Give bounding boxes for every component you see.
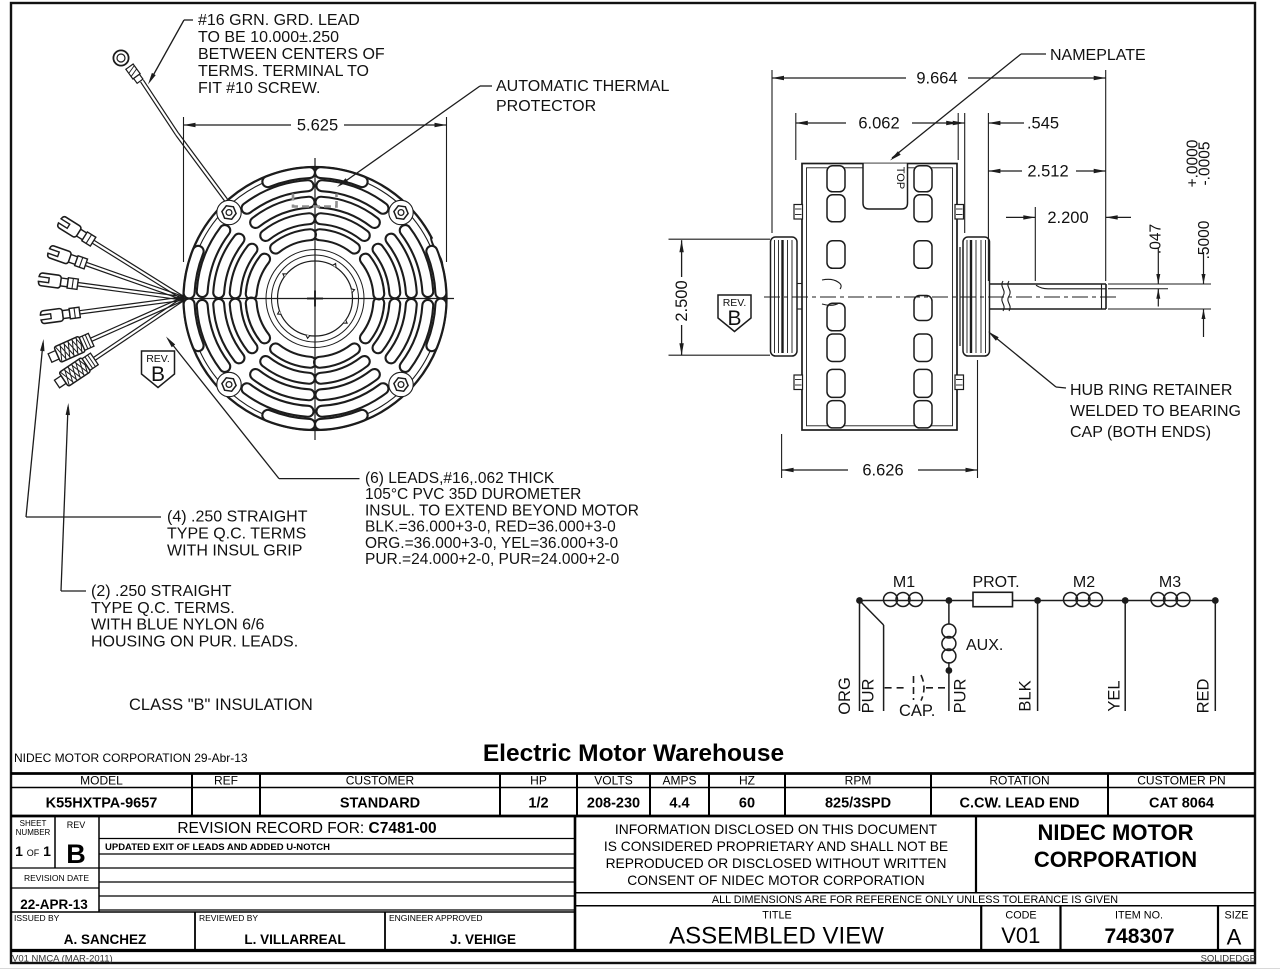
svg-text:CUSTOMER: CUSTOMER xyxy=(346,774,415,788)
svg-text:J. VEHIGE: J. VEHIGE xyxy=(450,932,516,947)
svg-text:WITH BLUE NYLON 6/6: WITH BLUE NYLON 6/6 xyxy=(91,617,264,634)
svg-text:BLK: BLK xyxy=(1017,680,1035,711)
svg-text:REVISION DATE: REVISION DATE xyxy=(24,873,89,883)
svg-text:HP: HP xyxy=(530,774,547,788)
svg-text:SHEET: SHEET xyxy=(20,819,47,828)
svg-text:INFORMATION DISCLOSED ON THIS: INFORMATION DISCLOSED ON THIS DOCUMENT xyxy=(615,822,938,837)
svg-text:CONSENT OF NIDEC MOTOR CORPORA: CONSENT OF NIDEC MOTOR CORPORATION xyxy=(627,873,924,888)
svg-text:PUR: PUR xyxy=(952,679,970,714)
svg-text:PUR: PUR xyxy=(860,679,878,714)
svg-text:60: 60 xyxy=(739,796,755,812)
svg-text:CORPORATION: CORPORATION xyxy=(1034,847,1197,872)
svg-text:B: B xyxy=(151,363,165,386)
svg-text:YEL: YEL xyxy=(1106,680,1124,711)
svg-text:748307: 748307 xyxy=(1104,925,1174,948)
svg-text:REVIEWED BY: REVIEWED BY xyxy=(199,913,258,923)
svg-text:TO BE 10.000±.250: TO BE 10.000±.250 xyxy=(198,29,339,46)
svg-text:NAMEPLATE: NAMEPLATE xyxy=(1050,47,1146,64)
svg-text:.047: .047 xyxy=(1148,224,1165,254)
svg-text:1/2: 1/2 xyxy=(528,796,548,812)
svg-text:HUB RING RETAINER: HUB RING RETAINER xyxy=(1070,382,1232,399)
svg-text:2.500: 2.500 xyxy=(673,280,691,321)
svg-text:BETWEEN CENTERS OF: BETWEEN CENTERS OF xyxy=(198,46,385,63)
svg-text:-.0005: -.0005 xyxy=(1197,142,1214,186)
svg-text:STANDARD: STANDARD xyxy=(340,796,420,812)
svg-text:V01: V01 xyxy=(1001,923,1040,948)
svg-text:C.CW. LEAD END: C.CW. LEAD END xyxy=(959,796,1079,812)
svg-text:M3: M3 xyxy=(1159,574,1181,591)
svg-text:PUR.=24.000+2-0, PUR=24.000+2-: PUR.=24.000+2-0, PUR=24.000+2-0 xyxy=(365,551,620,568)
svg-text:BLK.=36.000+3-0, RED=36.000+3-: BLK.=36.000+3-0, RED=36.000+3-0 xyxy=(365,519,616,536)
svg-text:REV: REV xyxy=(67,820,86,830)
svg-text:K55HXTPA-9657: K55HXTPA-9657 xyxy=(46,796,158,812)
svg-text:TYPE Q.C. TERMS.: TYPE Q.C. TERMS. xyxy=(91,600,235,617)
svg-text:2.200: 2.200 xyxy=(1047,209,1088,227)
svg-text:9.664: 9.664 xyxy=(916,70,957,88)
svg-text:#16 GRN. GRD. LEAD: #16 GRN. GRD. LEAD xyxy=(198,12,360,29)
svg-text:VOLTS: VOLTS xyxy=(594,774,632,788)
svg-text:ROTATION: ROTATION xyxy=(989,774,1049,788)
svg-text:(4) .250 STRAIGHT: (4) .250 STRAIGHT xyxy=(167,509,308,526)
svg-text:22-APR-13: 22-APR-13 xyxy=(20,897,88,912)
svg-text:4.4: 4.4 xyxy=(669,796,689,812)
svg-text:2.512: 2.512 xyxy=(1027,163,1068,181)
svg-text:L. VILLARREAL: L. VILLARREAL xyxy=(244,932,345,947)
svg-text:RED: RED xyxy=(1195,679,1213,714)
svg-text:CAP.: CAP. xyxy=(899,702,935,720)
svg-text:AUX.: AUX. xyxy=(966,637,1003,654)
svg-text:(6) LEADS,#16,.062 THICK: (6) LEADS,#16,.062 THICK xyxy=(365,470,555,487)
svg-text:TITLE: TITLE xyxy=(762,910,791,922)
svg-text:NIDEC MOTOR CORPORATION 29-Abr: NIDEC MOTOR CORPORATION 29-Abr-13 xyxy=(14,751,248,765)
svg-text:A. SANCHEZ: A. SANCHEZ xyxy=(64,932,147,947)
svg-text:B: B xyxy=(727,307,741,330)
svg-text:5.625: 5.625 xyxy=(297,117,338,135)
svg-text:(2) .250 STRAIGHT: (2) .250 STRAIGHT xyxy=(91,583,232,600)
svg-text:REF: REF xyxy=(214,774,238,788)
svg-text:ENGINEER APPROVED: ENGINEER APPROVED xyxy=(389,913,483,923)
svg-text:CUSTOMER PN: CUSTOMER PN xyxy=(1137,774,1225,788)
svg-text:ALL DIMENSIONS ARE FOR REFEREN: ALL DIMENSIONS ARE FOR REFERENCE ONLY UN… xyxy=(712,894,1118,906)
svg-text:CAT 8064: CAT 8064 xyxy=(1149,796,1214,812)
svg-text:ITEM NO.: ITEM NO. xyxy=(1115,910,1163,922)
svg-text:825/3SPD: 825/3SPD xyxy=(825,796,891,812)
svg-text:HZ: HZ xyxy=(739,774,755,788)
svg-text:REPRODUCED OR DISCLOSED WITHOU: REPRODUCED OR DISCLOSED WITHOUT WRITTEN xyxy=(606,856,947,871)
svg-text:INSUL. TO EXTEND BEYOND MOTOR: INSUL. TO EXTEND BEYOND MOTOR xyxy=(365,502,639,519)
svg-text:NIDEC MOTOR: NIDEC MOTOR xyxy=(1037,820,1193,845)
svg-text:HOUSING ON PUR. LEADS.: HOUSING ON PUR. LEADS. xyxy=(91,633,298,650)
svg-text:B: B xyxy=(66,839,86,869)
svg-text:.5000: .5000 xyxy=(1196,220,1213,259)
svg-text:ASSEMBLED VIEW: ASSEMBLED VIEW xyxy=(669,923,884,950)
svg-text:M1: M1 xyxy=(893,574,915,591)
svg-text:PROT.: PROT. xyxy=(972,574,1019,591)
svg-text:UPDATED EXIT OF LEADS AND ADDE: UPDATED EXIT OF LEADS AND ADDED U-NOTCH xyxy=(105,842,330,853)
svg-text:M2: M2 xyxy=(1073,574,1095,591)
svg-text:AUTOMATIC THERMAL: AUTOMATIC THERMAL xyxy=(496,78,669,95)
svg-text:Electric Motor Warehouse: Electric Motor Warehouse xyxy=(483,740,784,767)
svg-text:NUMBER: NUMBER xyxy=(16,828,51,837)
svg-text:TOP: TOP xyxy=(894,167,906,189)
svg-text:TYPE Q.C. TERMS: TYPE Q.C. TERMS xyxy=(167,526,306,543)
svg-text:PROTECTOR: PROTECTOR xyxy=(496,98,596,115)
svg-text:6.626: 6.626 xyxy=(862,462,903,480)
svg-text:TERMS. TERMINAL TO: TERMS. TERMINAL TO xyxy=(198,63,369,80)
svg-text:A: A xyxy=(1227,925,1242,950)
svg-text:IS CONSIDERED PROPRIETARY AND: IS CONSIDERED PROPRIETARY AND SHALL NOT … xyxy=(604,839,948,854)
svg-text:CAP (BOTH ENDS): CAP (BOTH ENDS) xyxy=(1070,424,1211,441)
svg-text:WITH INSUL GRIP: WITH INSUL GRIP xyxy=(167,543,302,560)
svg-text:REVISION RECORD FOR: C7481-00: REVISION RECORD FOR: C7481-00 xyxy=(177,820,436,837)
svg-text:CLASS "B" INSULATION: CLASS "B" INSULATION xyxy=(129,696,313,714)
svg-text:105°C PVC 35D DUROMETER: 105°C PVC 35D DUROMETER xyxy=(365,486,581,503)
svg-text:CODE: CODE xyxy=(1005,910,1036,922)
svg-text:ORG.=36.000+3-0, YEL=36.000+3-: ORG.=36.000+3-0, YEL=36.000+3-0 xyxy=(365,535,618,552)
svg-text:208-230: 208-230 xyxy=(587,796,640,812)
svg-text:MODEL: MODEL xyxy=(80,774,123,788)
svg-text:ISSUED BY: ISSUED BY xyxy=(14,913,60,923)
svg-text:AMPS: AMPS xyxy=(662,774,696,788)
svg-text:WELDED TO BEARING: WELDED TO BEARING xyxy=(1070,403,1241,420)
svg-text:RPM: RPM xyxy=(845,774,872,788)
svg-text:FIT #10 SCREW.: FIT #10 SCREW. xyxy=(198,80,320,97)
svg-text:V01 NMCA (MAR-2011): V01 NMCA (MAR-2011) xyxy=(12,954,113,965)
svg-text:ORG: ORG xyxy=(836,677,854,715)
svg-text:.545: .545 xyxy=(1027,115,1059,133)
svg-text:SIZE: SIZE xyxy=(1225,910,1249,922)
svg-text:6.062: 6.062 xyxy=(858,115,899,133)
svg-text:SOLIDEDGE: SOLIDEDGE xyxy=(1201,954,1256,965)
